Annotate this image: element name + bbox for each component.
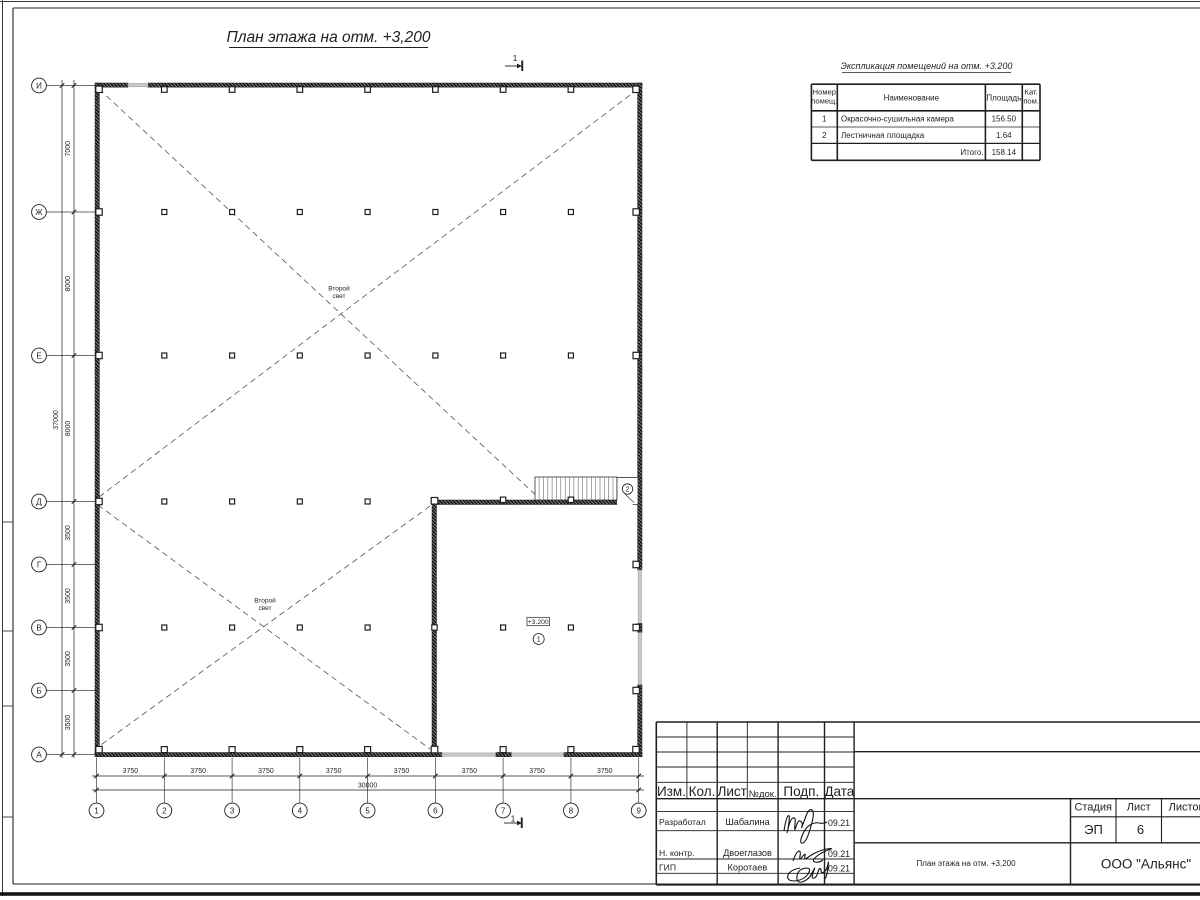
- svg-text:5: 5: [365, 806, 370, 815]
- svg-text:Кол.: Кол.: [689, 784, 716, 799]
- svg-text:Наименование: Наименование: [884, 93, 940, 102]
- svg-text:В: В: [36, 623, 41, 632]
- svg-text:6: 6: [1137, 822, 1144, 837]
- svg-text:37000: 37000: [53, 410, 60, 430]
- svg-text:Е: Е: [36, 351, 41, 360]
- svg-text:3: 3: [230, 806, 235, 815]
- svg-text:Стадия: Стадия: [1074, 802, 1112, 814]
- svg-text:8: 8: [569, 806, 574, 815]
- svg-text:Листов: Листов: [1169, 802, 1200, 814]
- svg-text:помещ.: помещ.: [811, 97, 837, 106]
- svg-text:План этажа на отм. +3,200: План этажа на отм. +3,200: [227, 29, 431, 46]
- svg-text:3750: 3750: [394, 768, 410, 775]
- svg-text:3500: 3500: [65, 525, 72, 541]
- svg-text:Г: Г: [37, 560, 42, 569]
- svg-text:Лист: Лист: [1127, 802, 1151, 814]
- svg-text:3750: 3750: [123, 768, 139, 775]
- svg-text:Окрасочно-сушильная камера: Окрасочно-сушильная камера: [841, 115, 954, 124]
- svg-text:Дата: Дата: [824, 784, 854, 799]
- svg-text:Двоеглазов: Двоеглазов: [723, 848, 772, 858]
- svg-text:1: 1: [537, 637, 541, 644]
- svg-text:09.21: 09.21: [828, 818, 850, 828]
- svg-text:Д: Д: [36, 497, 42, 506]
- svg-text:09.21: 09.21: [828, 849, 850, 859]
- svg-text:1: 1: [822, 115, 827, 124]
- svg-text:156.50: 156.50: [992, 115, 1017, 124]
- svg-text:Второй: Второй: [328, 285, 350, 293]
- svg-text:Н. контр.: Н. контр.: [659, 848, 694, 858]
- svg-text:2: 2: [162, 806, 167, 815]
- svg-text:3750: 3750: [190, 768, 206, 775]
- svg-text:Разработал: Разработал: [659, 817, 706, 827]
- svg-text:1: 1: [513, 53, 518, 63]
- svg-text:Второй: Второй: [254, 597, 276, 605]
- svg-text:Номер: Номер: [813, 88, 836, 97]
- svg-text:4: 4: [298, 806, 303, 815]
- svg-text:1.64: 1.64: [996, 131, 1012, 140]
- svg-text:30000: 30000: [358, 783, 378, 790]
- svg-text:А: А: [36, 750, 42, 759]
- svg-text:Б: Б: [36, 686, 41, 695]
- svg-text:Лестничная площадка: Лестничная площадка: [841, 131, 925, 140]
- svg-text:свет: свет: [258, 605, 271, 612]
- svg-text:158.14: 158.14: [992, 148, 1017, 157]
- svg-text:3750: 3750: [529, 768, 545, 775]
- svg-text:3500: 3500: [65, 651, 72, 667]
- svg-text:9: 9: [636, 806, 641, 815]
- svg-text:2: 2: [626, 487, 630, 494]
- svg-text:№док.: №док.: [749, 789, 777, 800]
- svg-text:Лист: Лист: [718, 784, 747, 799]
- svg-text:Подп.: Подп.: [783, 784, 819, 799]
- svg-text:3500: 3500: [65, 715, 72, 731]
- svg-text:3750: 3750: [461, 768, 477, 775]
- svg-text:1: 1: [511, 814, 516, 824]
- svg-text:План этажа на отм. +3,200: План этажа на отм. +3,200: [916, 859, 1016, 868]
- svg-text:Ж: Ж: [35, 208, 43, 217]
- svg-text:Экспликация помещений на отм.: Экспликация помещений на отм. +3.200: [841, 61, 1013, 71]
- svg-text:09.21: 09.21: [828, 864, 850, 874]
- svg-text:Шабалина: Шабалина: [725, 817, 770, 827]
- svg-text:8000: 8000: [65, 421, 72, 437]
- svg-text:Итого.: Итого.: [960, 148, 983, 157]
- svg-text:И: И: [36, 81, 42, 90]
- svg-text:2: 2: [822, 131, 827, 140]
- svg-text:6: 6: [433, 806, 438, 815]
- svg-text:+3.200: +3.200: [528, 619, 549, 626]
- svg-text:3500: 3500: [65, 588, 72, 604]
- svg-text:Изм.: Изм.: [657, 784, 686, 799]
- svg-text:свет: свет: [332, 293, 345, 300]
- svg-text:пом.: пом.: [1023, 97, 1039, 106]
- svg-text:Коротаев: Коротаев: [728, 863, 768, 873]
- svg-text:3750: 3750: [258, 768, 274, 775]
- svg-text:ГИП: ГИП: [659, 863, 676, 873]
- svg-text:ООО "Альянс": ООО "Альянс": [1101, 857, 1191, 872]
- svg-text:Площадь: Площадь: [986, 93, 1021, 102]
- svg-text:Кат.: Кат.: [1025, 88, 1038, 97]
- svg-text:3750: 3750: [326, 768, 342, 775]
- svg-text:1: 1: [94, 806, 99, 815]
- svg-text:7: 7: [501, 806, 506, 815]
- svg-text:3750: 3750: [597, 768, 613, 775]
- svg-text:ЭП: ЭП: [1084, 822, 1103, 837]
- svg-text:7000: 7000: [65, 141, 72, 157]
- svg-text:8000: 8000: [65, 276, 72, 292]
